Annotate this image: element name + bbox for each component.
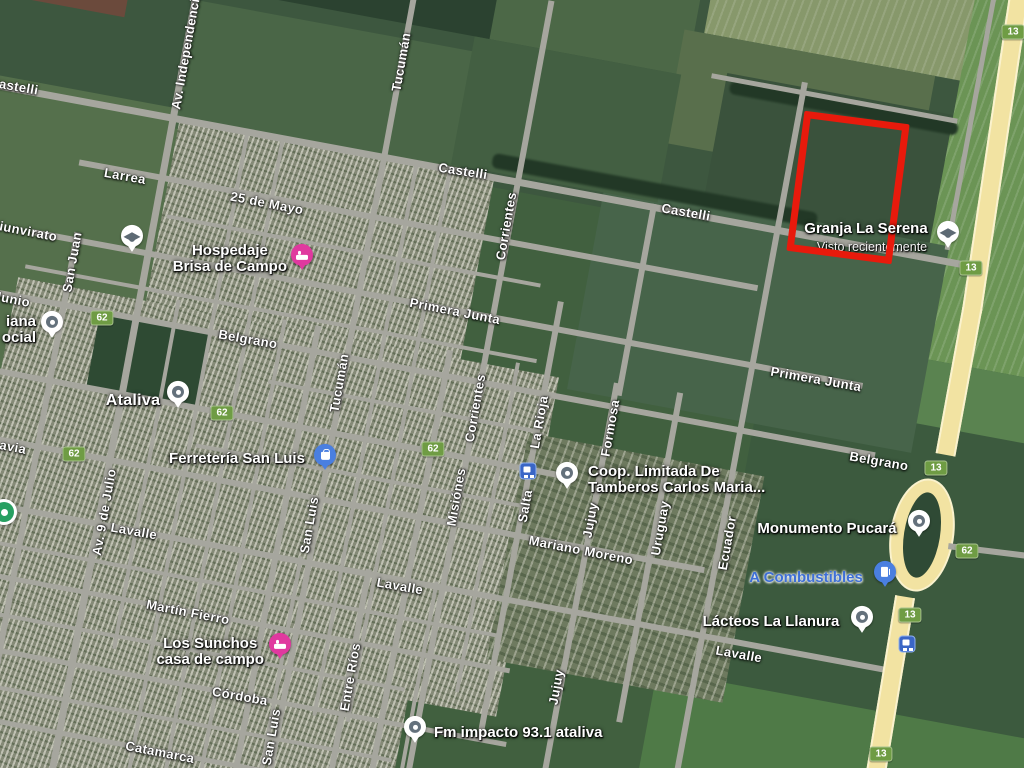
street-label-jujuy-s: Jujuy: [545, 668, 566, 706]
route-62-badge: 62: [421, 442, 444, 457]
bus-stop-icon[interactable]: [899, 636, 916, 653]
place-pin-icon[interactable]: [851, 606, 873, 634]
place-pin-icon[interactable]: [556, 462, 578, 490]
route-13-badge: 13: [898, 608, 921, 623]
poi-label-line: ocial: [2, 330, 36, 346]
place-pin-icon[interactable]: [404, 716, 426, 744]
street-label-uruguay: Uruguay: [648, 499, 672, 556]
street-label-larrea: Larrea: [103, 165, 147, 187]
street-label-av-9-de-julio: Av. 9 de Julio: [89, 467, 119, 556]
poi-label-ferreteria[interactable]: Ferretería San Luis: [169, 451, 305, 467]
street-label-la-rioja: La Rioja: [527, 394, 551, 450]
street-label-castelli-mid: Castelli: [437, 160, 488, 183]
poi-label-monumento[interactable]: Monumento Pucará: [757, 521, 896, 537]
poi-label-line: Tamberos Carlos Maria...: [588, 480, 765, 496]
school-icon[interactable]: [937, 221, 959, 249]
place-pin-icon[interactable]: [41, 311, 63, 339]
gas-station-icon[interactable]: [874, 561, 896, 589]
street-label-cordoba: Córdoba: [211, 684, 269, 709]
route-13-badge: 13: [1001, 25, 1024, 40]
route-62-badge: 62: [90, 311, 113, 326]
street-label-corrientes-n: Corrientes: [493, 191, 520, 262]
map-labels-layer: Castelli Larrea 25 de Mayo Castelli Cast…: [0, 0, 1024, 768]
place-pin-icon[interactable]: [908, 510, 930, 538]
street-label-lavalle-mid: Lavalle: [376, 575, 425, 598]
route-62-badge: 62: [62, 447, 85, 462]
poi-label-line: casa de campo: [156, 652, 264, 668]
school-icon[interactable]: [121, 225, 143, 253]
street-label-castelli-e: Castelli: [660, 200, 711, 223]
street-label-primera-junta-e: Primera Junta: [769, 364, 862, 395]
street-label-belgrano-w: Belgrano: [217, 326, 278, 351]
poi-label-line: Coop. Limitada De: [588, 464, 765, 480]
route-13-badge: 13: [959, 261, 982, 276]
route-13-badge: 13: [869, 747, 892, 762]
bus-stop-icon[interactable]: [520, 463, 537, 480]
street-label-mariano-moreno: Mariano Moreno: [528, 533, 635, 568]
street-label-entre-rios: Entre Ríos: [337, 642, 364, 713]
street-label-ecuador: Ecuador: [715, 515, 739, 572]
poi-label-combustibles[interactable]: A Combustibles: [749, 570, 863, 586]
poi-label-line: Hospedaje: [173, 243, 287, 259]
street-label-san-luis-s: San Luis: [259, 707, 284, 766]
poi-label-coop[interactable]: Coop. Limitada De Tamberos Carlos Maria.…: [588, 464, 765, 496]
street-label-belgrano-e: Belgrano: [848, 448, 909, 473]
green-place-pin-icon[interactable]: [0, 499, 17, 525]
street-label-25-de-mayo: 25 de Mayo: [229, 189, 305, 218]
satellite-map[interactable]: Castelli Larrea 25 de Mayo Castelli Cast…: [0, 0, 1024, 768]
shopping-bag-icon[interactable]: [314, 444, 336, 472]
street-label-formosa: Formosa: [598, 398, 623, 457]
street-label-avia: avia: [0, 437, 28, 457]
route-62-badge: 62: [955, 544, 978, 559]
route-62-badge: 62: [210, 406, 233, 421]
town-label-ataliva[interactable]: Ataliva: [106, 393, 161, 409]
street-label-tucuman-n: Tucumán: [388, 31, 413, 92]
property-highlight-rectangle: [786, 111, 909, 264]
street-label-san-juan: San Juan: [59, 231, 84, 294]
poi-label-line: iana: [2, 314, 36, 330]
poi-label-partial-left[interactable]: iana ocial: [2, 314, 36, 346]
lodging-icon[interactable]: [291, 244, 313, 272]
street-label-catamarca: Catamarca: [124, 738, 196, 766]
street-label-primera-junta-w: Primera Junta: [408, 295, 501, 327]
street-label-castelli-w: Castelli: [0, 74, 40, 97]
poi-label-line: Brisa de Campo: [173, 259, 287, 275]
street-label-san-luis-n: San Luis: [297, 495, 322, 554]
street-label-junio: Junio: [0, 288, 31, 310]
street-label-triunvirato: Triunvirato: [0, 216, 59, 244]
street-label-martin-fierro: Martín Fierro: [145, 597, 231, 628]
street-label-lavalle-e: Lavalle: [715, 643, 764, 666]
poi-label-fm-impacto[interactable]: Fm impacto 93.1 ataliva: [434, 725, 602, 741]
street-label-corrientes-s: Corrientes: [462, 373, 489, 444]
poi-label-granja[interactable]: Granja La Serena: [804, 221, 927, 237]
lodging-icon[interactable]: [269, 633, 291, 661]
poi-label-sunchos[interactable]: Los Sunchos casa de campo: [156, 636, 264, 668]
poi-label-line: Los Sunchos: [156, 636, 264, 652]
street-label-salta: Salta: [515, 488, 536, 523]
street-label-av-independencia: Av. Independencia: [168, 0, 204, 110]
poi-label-hospedaje[interactable]: Hospedaje Brisa de Campo: [173, 243, 287, 275]
route-13-badge: 13: [924, 461, 947, 476]
street-label-tucuman-s: Tucumán: [326, 352, 351, 413]
place-pin-icon[interactable]: [167, 381, 189, 409]
street-label-misiones: Misiónes: [444, 467, 469, 528]
street-label-lavalle-w: Lavalle: [110, 520, 159, 543]
poi-label-lacteos[interactable]: Lácteos La Llanura: [703, 614, 840, 630]
street-label-jujuy-n: Jujuy: [579, 501, 600, 539]
